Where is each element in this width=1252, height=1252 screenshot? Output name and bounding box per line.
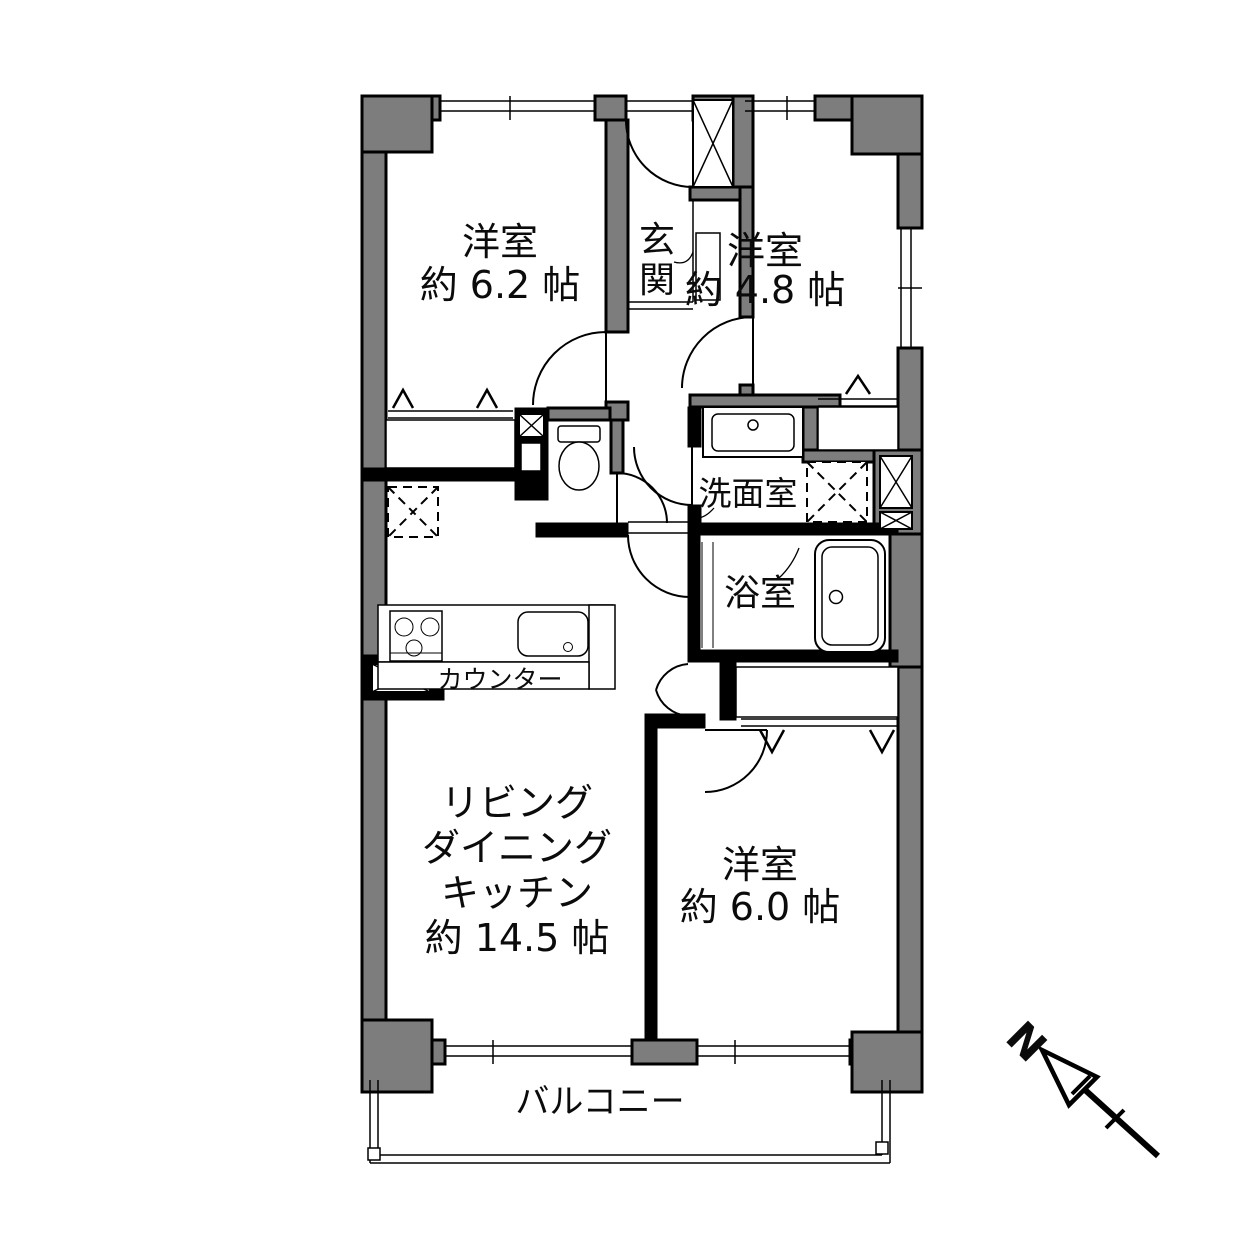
ldk-label-line1: リビング: [441, 781, 593, 825]
bedroom1-name-label: 洋室: [462, 220, 538, 264]
bedroom3-door-swing: [705, 730, 767, 792]
wall-left: [362, 96, 386, 1092]
wall-washroom-top: [690, 395, 840, 407]
corridor-ldk-opening: [628, 522, 690, 533]
entrance-leader-line: [674, 252, 693, 263]
closet-bedroom3: [736, 667, 898, 717]
window-bedroom2-top: [745, 96, 815, 120]
bedroom2-area-label: 約 4.8 帖: [685, 268, 846, 312]
kitchen-sink: [518, 612, 588, 656]
window-bedroom2-right: [898, 228, 922, 348]
ldk-area-label: 約 14.5 帖: [425, 916, 610, 960]
bedroom1-door-swing: [533, 332, 606, 405]
toilet-tank: [558, 426, 600, 442]
wall-bedroom1-entrance: [606, 120, 628, 332]
washer-space: [807, 462, 867, 522]
closet-bedroom1: [386, 420, 515, 468]
ldk-door-swing: [628, 535, 690, 597]
bathtub-drain-icon: [830, 591, 843, 604]
pillar-bottom-right: [852, 1032, 922, 1092]
window-ldk-bottom: [445, 1040, 632, 1064]
closet-bedroom3-fold-marks: [760, 730, 894, 752]
window-bedroom3-bottom: [697, 1040, 850, 1064]
wall-bottom-seg2: [632, 1040, 697, 1064]
wall-bathroom-top: [688, 523, 898, 535]
floor-plan-page: N 洋室 約 6.2 帖 玄 関 洋室 約 4.8 帖 洗面室 浴室 カウンター…: [0, 0, 1252, 1252]
pipe-space-rect: [521, 443, 541, 471]
bedroom2-door-swing: [682, 317, 753, 388]
closet-bedroom1-doors: [388, 411, 513, 418]
entrance-label-char2: 関: [639, 260, 675, 301]
vestibule-folding-door: [656, 664, 688, 716]
toilet-bowl: [559, 442, 599, 490]
entrance-door-opening: [626, 101, 693, 111]
pillar-top-right: [852, 96, 922, 154]
window-bedroom1-top: [440, 96, 595, 120]
wall-top-seg2: [595, 96, 626, 120]
bedroom3-area-label: 約 6.0 帖: [680, 885, 841, 929]
wall-closet1-bottom: [362, 468, 548, 481]
bathroom-label: 浴室: [724, 573, 796, 614]
bathroom-door-pocket: [702, 542, 713, 648]
ldk-label-line3: キッチン: [441, 871, 593, 915]
bedroom2-name-label: 洋室: [727, 229, 803, 273]
pillar-top-left: [362, 96, 432, 152]
bedroom3-name-label: 洋室: [722, 843, 798, 887]
balcony-label: バルコニー: [515, 1082, 684, 1122]
closet-bedroom2: [818, 407, 898, 450]
kitchen-counter-return: [589, 605, 615, 689]
pillar-bottom-left: [362, 1020, 432, 1092]
wall-toilet-right: [611, 420, 623, 473]
ldk-label-line2: ダイニング: [422, 826, 612, 870]
bedroom1-area-label: 約 6.2 帖: [420, 263, 581, 307]
toilet-door-swing: [617, 473, 667, 523]
bathtub-fixture: [815, 540, 885, 652]
closet-bedroom3-doors: [741, 719, 898, 726]
compass: N: [997, 1012, 1158, 1156]
washbasin-fixture: [703, 407, 803, 457]
washroom-door-swing: [634, 447, 692, 505]
floor-plan-drawing: N 洋室 約 6.2 帖 玄 関 洋室 約 4.8 帖 洗面室 浴室 カウンター…: [0, 0, 1252, 1252]
closet-bedroom1-fold-marks: [393, 390, 497, 408]
washroom-label: 洗面室: [699, 474, 798, 513]
wall-bedroom3-top: [645, 714, 705, 728]
counter-label: カウンター: [437, 665, 562, 694]
washbasin-faucet-icon: [748, 420, 758, 430]
balcony-post-left: [368, 1148, 380, 1160]
toilet-fixture: [558, 426, 600, 490]
wall-washroom-left-a: [688, 407, 701, 447]
balcony-post-right: [876, 1142, 888, 1154]
wall-ldk-bedroom3: [645, 728, 657, 1040]
wall-bathroom-right-fill: [890, 534, 922, 667]
entrance-label-char1: 玄: [639, 220, 675, 261]
wall-toilet-top: [548, 408, 610, 420]
closet-bedroom2-fold-mark: [846, 376, 870, 394]
entrance-door-swing: [626, 120, 693, 187]
wall-toilet-bottom: [536, 523, 628, 537]
wall-bathroom-left: [688, 535, 700, 650]
wall-vestibule-right: [720, 662, 736, 720]
